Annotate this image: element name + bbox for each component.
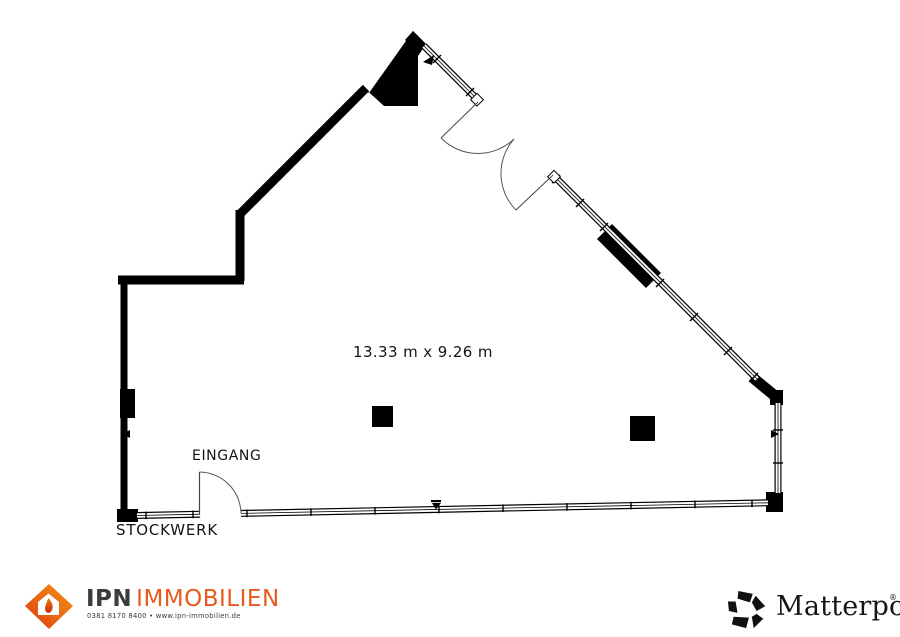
pillar-center-right (630, 416, 655, 441)
corner-top-right-b (770, 390, 783, 405)
ipn-wordmark: IPNIMMOBILIEN (86, 588, 280, 611)
pillar-left-wall (120, 389, 135, 418)
interior-pillars (372, 406, 655, 441)
door-swing-left (441, 138, 514, 153)
entrance-door (200, 472, 242, 514)
dimension-marker-south-bar (431, 500, 441, 502)
door-leaf-left (441, 102, 478, 138)
floorplan-page: 13.33 m x 9.26 m EINGANG STOCKWERK IPNIM… (0, 0, 900, 637)
floorplan-drawing (0, 0, 900, 637)
wall-diagonal-upper-left (240, 88, 366, 214)
dimension-marker-north (423, 55, 434, 65)
floor-level-label: STOCKWERK (116, 521, 218, 539)
matterport-wordmark: Matterport (776, 591, 900, 622)
ipn-brand-secondary: IMMOBILIEN (136, 586, 279, 612)
window-wall-bottom (137, 500, 768, 520)
corner-bottom-right (766, 492, 783, 512)
entrance-door-swing (200, 472, 242, 513)
door-swing-right (501, 139, 516, 210)
ipn-immobilien-logo: IPNIMMOBILIEN 0381 8170 8400 • www.ipn-i… (23, 583, 253, 631)
window-wall-right (773, 403, 783, 493)
entrance-label: EINGANG (192, 448, 261, 464)
matterport-trademark: ® (889, 593, 897, 602)
door-leaf-right (516, 175, 553, 210)
pillar-diagonal-wall (597, 224, 661, 288)
ipn-brand-primary: IPN (86, 586, 132, 612)
matterport-pinwheel-icon (727, 590, 769, 632)
room-dimension-label: 13.33 m x 9.26 m (353, 343, 493, 361)
pillar-center-left (372, 406, 393, 427)
double-door (441, 93, 560, 210)
ipn-contact-line: 0381 8170 8400 • www.ipn-immobilien.de (87, 612, 241, 620)
ipn-diamond-house-icon (23, 583, 75, 631)
